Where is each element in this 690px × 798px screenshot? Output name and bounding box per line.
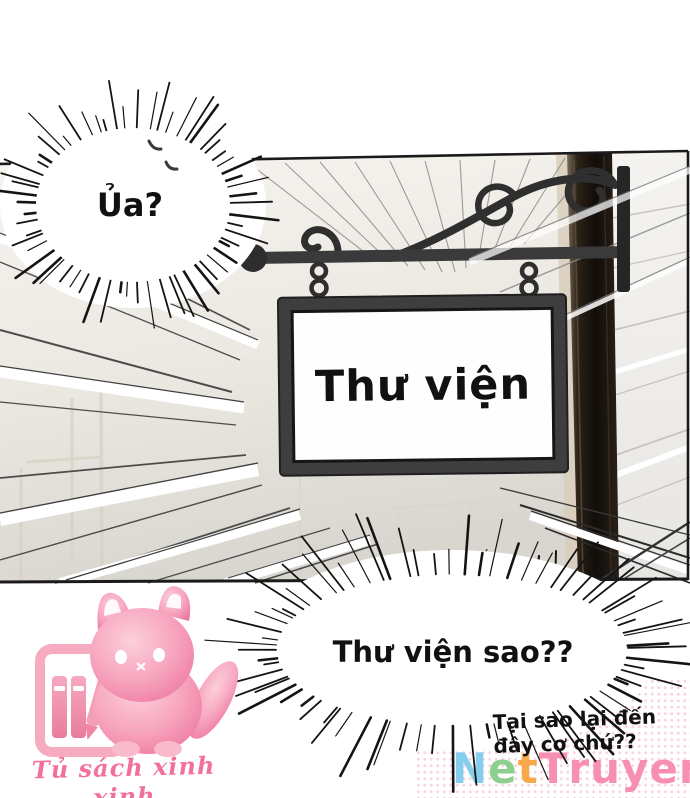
cat-head — [90, 608, 194, 702]
aside-line2: đây cơ chứ?? — [493, 729, 637, 758]
bracket-mount-plate — [617, 166, 630, 292]
library-sign: Thư viện — [278, 294, 568, 476]
comic-page: NetTruyen Tủ sách xinh xinh — [0, 0, 690, 798]
fanpage-mascot-cat — [40, 586, 248, 757]
cat-paw-left — [112, 741, 140, 757]
speech-text-bottom: Thư viện sao?? — [333, 635, 574, 669]
cat-eye-right — [153, 648, 165, 662]
cat-paw-right — [154, 741, 182, 757]
comic-panel-illustration: Thư viện Thư viện sao?? Tại sao lại đến … — [0, 0, 690, 798]
speech-text-top: Ủa? — [97, 182, 163, 224]
aside-text: Tại sao lại đến đây cơ chứ?? — [492, 704, 657, 758]
sign-text: Thư viện — [315, 360, 532, 413]
cat-eye-left — [115, 650, 127, 664]
